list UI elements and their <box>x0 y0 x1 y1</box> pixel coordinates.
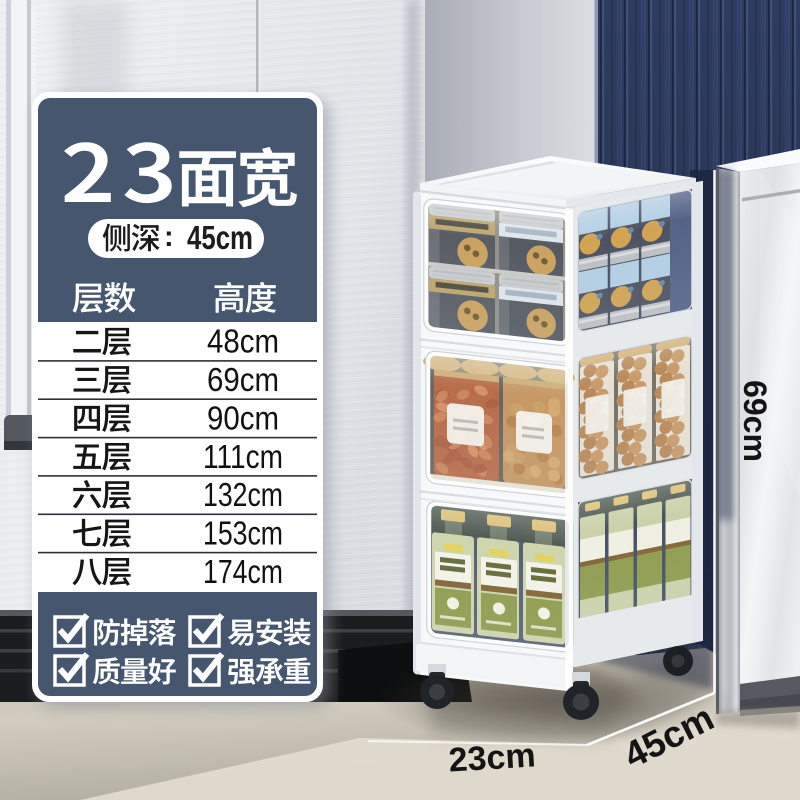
svg-text:45cm: 45cm <box>187 219 253 256</box>
svg-text:111cm: 111cm <box>203 438 283 475</box>
svg-text:69cm: 69cm <box>737 380 773 462</box>
svg-text:90cm: 90cm <box>207 399 279 436</box>
svg-text:174cm: 174cm <box>203 553 283 590</box>
svg-text:153cm: 153cm <box>203 515 283 552</box>
svg-text:23cm: 23cm <box>447 736 536 779</box>
svg-text:69cm: 69cm <box>207 361 279 398</box>
svg-text:48cm: 48cm <box>207 323 279 360</box>
svg-text:132cm: 132cm <box>203 476 283 513</box>
svg-text::: : <box>164 221 174 253</box>
